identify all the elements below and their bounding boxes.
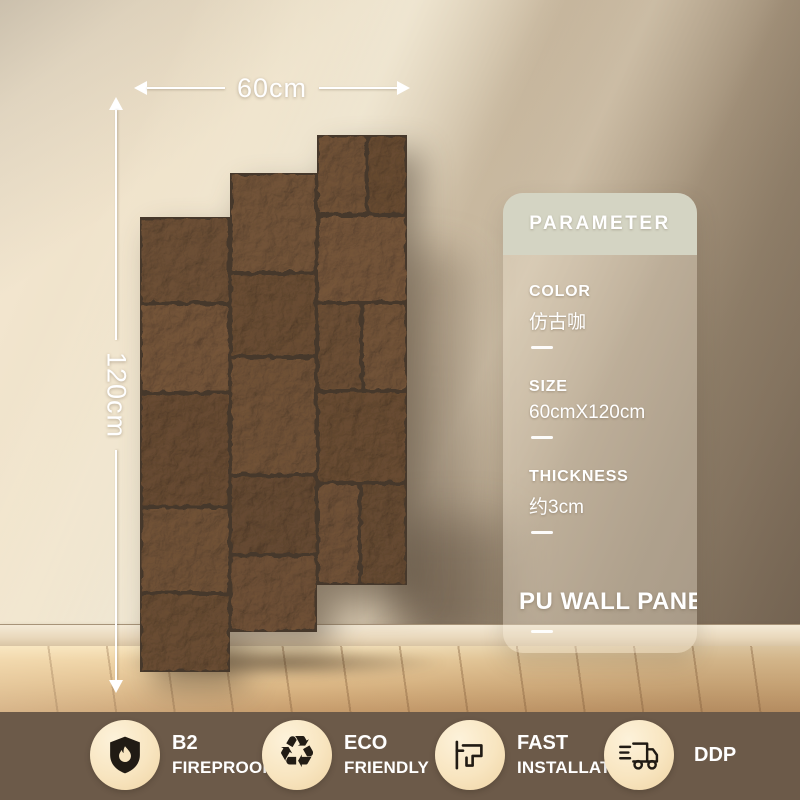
dimension-line — [147, 87, 225, 89]
product-scene: 60cm 120cm PARAMETER COLOR 仿古咖 SIZE 60cm… — [0, 0, 800, 800]
badge-eco-friendly: ♻ ECO FRIENDLY — [262, 720, 429, 790]
width-dimension: 60cm — [134, 74, 410, 102]
height-dimension: 120cm — [101, 97, 131, 693]
divider-dash — [531, 531, 553, 534]
width-dimension-label: 60cm — [237, 73, 307, 104]
stone-wall-panel — [140, 135, 407, 675]
spec-value: 仿古咖 — [529, 307, 683, 334]
card-title: PARAMETER — [529, 213, 670, 235]
badge-fireproof: B2 FIREPROOF — [90, 720, 273, 790]
badge-text: B2 FIREPROOF — [172, 730, 273, 780]
height-dimension-label: 120cm — [101, 352, 132, 438]
arrow-down-icon — [109, 680, 123, 693]
spec-value: 60cmX120cm — [529, 402, 683, 424]
divider-dash — [531, 630, 553, 633]
arrow-up-icon — [109, 97, 123, 110]
divider-dash — [531, 346, 553, 349]
spec-thickness: THICKNESS 约3cm — [529, 468, 683, 534]
drill-icon — [435, 720, 505, 790]
spec-color: COLOR 仿古咖 — [529, 283, 683, 349]
dimension-line — [319, 87, 397, 89]
arrow-left-icon — [134, 81, 147, 95]
parameter-card-header: PARAMETER — [503, 193, 697, 255]
dimension-line — [115, 450, 117, 680]
badge-text: DDP — [694, 742, 736, 769]
product-title: PU WALL PANEL — [519, 588, 697, 616]
arrow-right-icon — [397, 81, 410, 95]
parameter-card: PARAMETER COLOR 仿古咖 SIZE 60cmX120cm THIC… — [503, 193, 697, 653]
spec-value: 约3cm — [529, 492, 683, 519]
badge-text: ECO FRIENDLY — [344, 730, 429, 780]
spec-label: COLOR — [529, 283, 683, 301]
spec-label: SIZE — [529, 378, 683, 396]
panel-shadow-lower — [400, 520, 510, 640]
recycle-icon: ♻ — [262, 720, 332, 790]
parameter-card-body: COLOR 仿古咖 SIZE 60cmX120cm THICKNESS 约3cm… — [503, 255, 697, 653]
badge-ddp: DDP — [604, 720, 736, 790]
shield-flame-icon — [90, 720, 160, 790]
spec-label: THICKNESS — [529, 468, 683, 486]
spec-size: SIZE 60cmX120cm — [529, 378, 683, 439]
delivery-truck-icon — [604, 720, 674, 790]
divider-dash — [531, 436, 553, 439]
dimension-line — [115, 110, 117, 340]
